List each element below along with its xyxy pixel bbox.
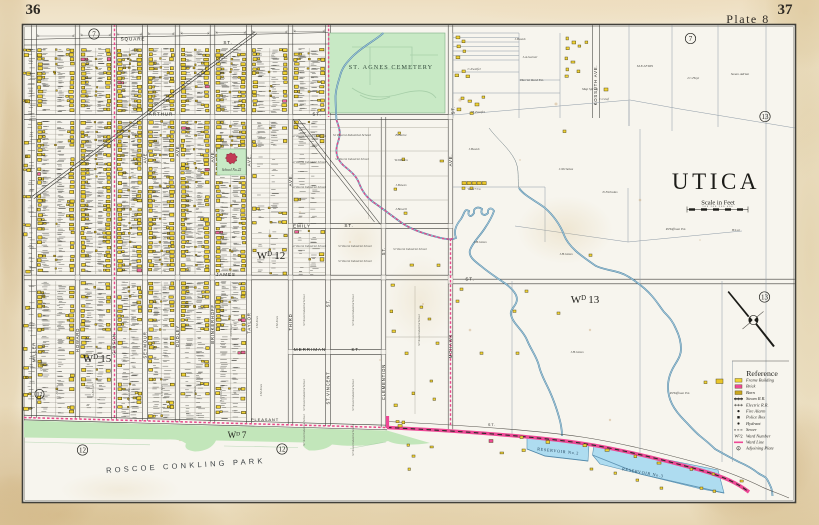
svg-text:ST. AGNES CEMETERY: ST. AGNES CEMETERY (349, 64, 434, 71)
svg-text:M.E.LEWIS: M.E.LEWIS (636, 64, 654, 68)
svg-text:ST.VINCENT: ST.VINCENT (325, 371, 330, 404)
svg-text:MOHAWK: MOHAWK (448, 334, 453, 358)
svg-text:Ward Number: Ward Number (746, 433, 771, 438)
svg-text:36: 36 (26, 2, 42, 18)
svg-text:DUDLEY: DUDLEY (175, 325, 180, 347)
svg-text:12: 12 (37, 392, 43, 398)
svg-text:St Vincent Industrial School: St Vincent Industrial School (333, 133, 371, 137)
svg-text:St Vincent Industrial School: St Vincent Industrial School (338, 259, 372, 263)
svg-text:W.OBrien: W.OBrien (394, 158, 408, 162)
svg-text:EMILY: EMILY (293, 224, 311, 229)
svg-text:Frame Building: Frame Building (745, 378, 775, 383)
svg-text:THIRD: THIRD (288, 313, 293, 330)
svg-text:UTICA: UTICA (672, 169, 760, 194)
svg-text:ST.: ST. (488, 423, 496, 427)
svg-text:J.H.Glass: J.H.Glass (473, 240, 487, 244)
svg-text:ST.: ST. (344, 223, 353, 228)
svg-text:L.W.Jones: L.W.Jones (160, 383, 164, 397)
svg-text:J.M.Jones: J.M.Jones (275, 315, 279, 328)
svg-text:C.H.Smart: C.H.Smart (229, 323, 233, 336)
svg-text:13: 13 (762, 113, 770, 121)
svg-text:MILLER: MILLER (31, 342, 36, 362)
svg-text:P.Hoffman Est.: P.Hoffman Est. (669, 391, 691, 395)
svg-text:Fire Alarm: Fire Alarm (745, 409, 765, 414)
svg-text:J.Baush: J.Baush (515, 37, 526, 41)
svg-text:AVE.: AVE. (175, 144, 180, 157)
svg-text:TAYLOR: TAYLOR (246, 312, 251, 333)
svg-text:N.Nicholas: N.Nicholas (601, 190, 618, 194)
svg-text:J.Baush: J.Baush (469, 147, 480, 151)
svg-text:GIBSON: GIBSON (111, 333, 116, 355)
svg-text:C.W.Davis: C.W.Davis (193, 385, 197, 399)
svg-text:Steam R.R.: Steam R.R. (746, 396, 765, 401)
svg-text:ST.: ST. (325, 299, 330, 308)
svg-text:M.Zweifel: M.Zweifel (470, 110, 485, 114)
svg-text:L.H.Davis: L.H.Davis (219, 388, 223, 402)
svg-text:J.Bowell: J.Bowell (395, 207, 407, 211)
svg-text:SEYMOUR: SEYMOUR (142, 331, 147, 358)
svg-text:100 200 300 400: 100 200 300 400 (702, 205, 733, 208)
svg-text:12: 12 (79, 447, 87, 455)
svg-text:Barn: Barn (746, 390, 756, 395)
svg-text:ST.: ST. (465, 276, 474, 281)
svg-text:St Vincent Industrial School: St Vincent Industrial School (292, 134, 326, 138)
svg-text:Police Box: Police Box (745, 415, 765, 420)
svg-text:J.Bowes: J.Bowes (395, 183, 407, 187)
svg-text:AVE.: AVE. (288, 174, 293, 187)
svg-text:J.Nicholas: J.Nicholas (559, 167, 574, 171)
svg-text:St Vincent Industrial School: St Vincent Industrial School (352, 294, 355, 325)
svg-text:BRINKERHOFF: BRINKERHOFF (210, 304, 215, 344)
svg-text:7: 7 (92, 31, 96, 39)
svg-text:Electric R.R.: Electric R.R. (745, 402, 769, 407)
svg-text:SQUARE: SQUARE (121, 37, 146, 42)
svg-text:KOSSUTH AVE.: KOSSUTH AVE. (593, 65, 598, 106)
svg-text:JAMES: JAMES (216, 272, 236, 277)
svg-text:Ward Line: Ward Line (746, 440, 764, 445)
svg-text:J.H.Glass: J.H.Glass (570, 350, 584, 354)
svg-text:37: 37 (778, 2, 794, 18)
svg-text:Susan Adrian: Susan Adrian (731, 72, 750, 76)
svg-text:St Vincent Industrial School: St Vincent Industrial School (352, 424, 355, 455)
svg-text:St Vincent Industrial School: St Vincent Industrial School (292, 185, 326, 189)
svg-text:ARTHUR: ARTHUR (149, 112, 173, 117)
svg-text:ST.: ST. (351, 347, 360, 352)
svg-text:J.M.Jones: J.M.Jones (259, 383, 263, 396)
svg-text:PLEASANT: PLEASANT (251, 417, 279, 422)
svg-text:St Vincent Industrial School: St Vincent Industrial School (303, 294, 306, 325)
svg-text:CLEMENTION: CLEMENTION (381, 364, 386, 400)
svg-text:St Vincent Industrial School: St Vincent Industrial School (338, 244, 372, 248)
svg-text:AVE.: AVE. (142, 151, 147, 164)
svg-text:ST.: ST. (381, 247, 386, 256)
svg-text:B.Barne: B.Barne (395, 133, 407, 137)
svg-text:J.Evans: J.Evans (55, 384, 59, 394)
svg-text:HOWARD: HOWARD (75, 328, 80, 352)
svg-text:St Vincent Industrial School: St Vincent Industrial School (292, 160, 326, 164)
svg-text:St Vincent Industrial School: St Vincent Industrial School (393, 247, 427, 251)
svg-text:7: 7 (689, 35, 693, 43)
svg-text:WD 13: WD 13 (571, 294, 600, 306)
svg-text:J.H.Glass: J.H.Glass (559, 252, 573, 256)
svg-text:ST.: ST. (450, 106, 455, 115)
svg-text:ST.: ST. (223, 40, 232, 45)
svg-text:Brick: Brick (746, 384, 757, 389)
svg-text:C.Graf: C.Graf (599, 97, 610, 101)
svg-text:Wurz+Co: Wurz+Co (467, 187, 481, 191)
svg-text:AVE.: AVE. (448, 154, 453, 167)
svg-text:AVE.: AVE. (246, 154, 251, 167)
svg-text:St Vincent Industrial School: St Vincent Industrial School (303, 379, 306, 410)
svg-text:MERRIMAN: MERRIMAN (294, 347, 326, 352)
svg-text:St Vincent Industrial School: St Vincent Industrial School (292, 244, 326, 248)
svg-text:S.E.Paul Est: S.E.Paul Est (127, 388, 131, 403)
svg-text:ST.: ST. (312, 112, 321, 117)
svg-text:Hydrant: Hydrant (745, 421, 761, 426)
svg-text:J.C.Hoyt: J.C.Hoyt (687, 76, 700, 80)
svg-text:St Vincent Industrial School: St Vincent Industrial School (335, 157, 369, 161)
svg-text:St Vincent Industrial School: St Vincent Industrial School (303, 414, 306, 445)
svg-text:St Vincent Industrial School: St Vincent Industrial School (352, 379, 355, 410)
svg-text:AVE.: AVE. (210, 150, 215, 163)
svg-text:J.M.Jones: J.M.Jones (255, 315, 259, 328)
svg-text:A.B.Clark: A.B.Clark (91, 383, 95, 397)
svg-text:J.C.Rogol: J.C.Rogol (39, 359, 43, 371)
svg-text:Adjoining Plate: Adjoining Plate (745, 446, 774, 451)
svg-text:School No.22: School No.22 (222, 168, 242, 172)
svg-text:WD 15: WD 15 (83, 353, 112, 365)
svg-text:C.Zweifel: C.Zweifel (467, 67, 480, 71)
svg-text:13: 13 (761, 294, 769, 302)
svg-text:Harriet Reed Est.: Harriet Reed Est. (519, 78, 544, 82)
svg-text:Sewer: Sewer (746, 427, 757, 432)
svg-text:12: 12 (279, 446, 287, 454)
svg-text:P.Hoffman Est.: P.Hoffman Est. (665, 227, 687, 231)
svg-text:St Vincent Industrial School: St Vincent Industrial School (418, 314, 421, 345)
svg-text:J.A.Garner: J.A.Garner (522, 55, 538, 59)
svg-text:H.Lee: H.Lee (731, 228, 741, 232)
